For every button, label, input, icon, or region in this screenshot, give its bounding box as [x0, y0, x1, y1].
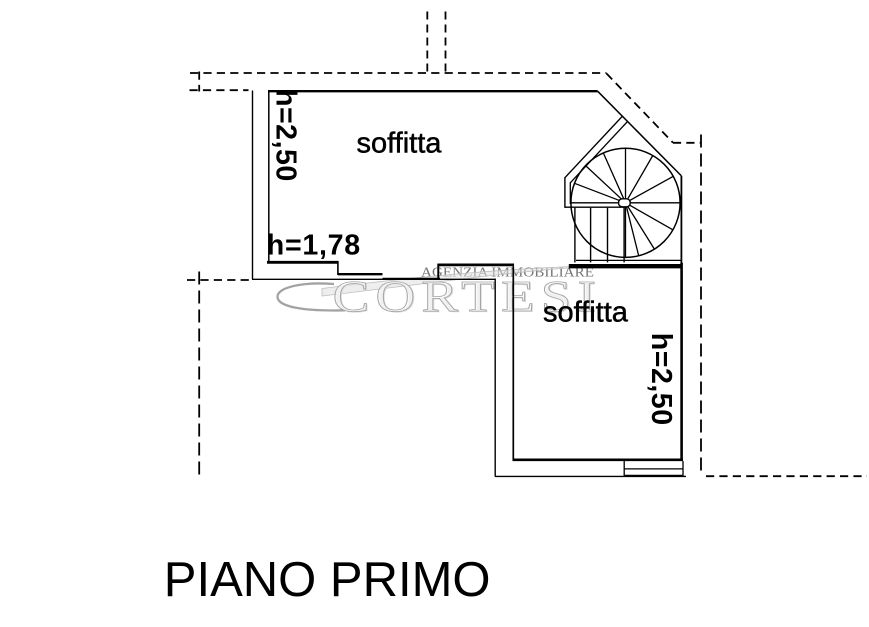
svg-text:h=1,78: h=1,78 [267, 229, 361, 261]
svg-text:PIANO PRIMO: PIANO PRIMO [164, 553, 491, 607]
svg-text:soffitta: soffitta [357, 128, 443, 160]
svg-text:soffitta: soffitta [543, 297, 629, 329]
svg-text:h=2,50: h=2,50 [269, 89, 301, 182]
svg-text:h=2,50: h=2,50 [645, 333, 677, 426]
